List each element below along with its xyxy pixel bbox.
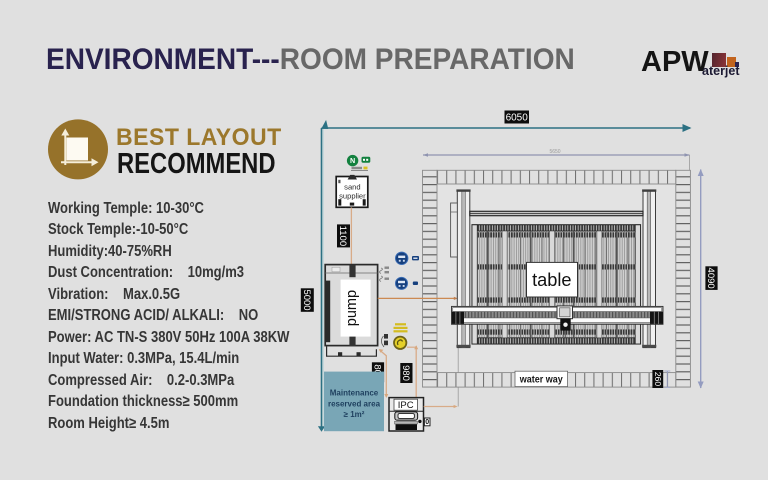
svg-text:260: 260 bbox=[653, 372, 663, 386]
svg-text:≥ 1m²: ≥ 1m² bbox=[344, 410, 365, 419]
svg-text:5000: 5000 bbox=[301, 289, 312, 310]
svg-text:reserved area: reserved area bbox=[328, 399, 381, 408]
svg-text:water way: water way bbox=[519, 374, 563, 386]
svg-text:N: N bbox=[350, 156, 355, 165]
svg-text:5650: 5650 bbox=[549, 149, 560, 155]
svg-text:6050: 6050 bbox=[506, 113, 529, 124]
svg-text:sand: sand bbox=[344, 183, 360, 192]
svg-text:1100: 1100 bbox=[337, 226, 348, 246]
svg-text:0: 0 bbox=[425, 419, 429, 426]
svg-text:IPC: IPC bbox=[398, 400, 414, 411]
svg-text:Maintenance: Maintenance bbox=[330, 389, 379, 398]
svg-text:4090: 4090 bbox=[705, 268, 716, 289]
svg-text:pump: pump bbox=[344, 290, 360, 326]
svg-text:table: table bbox=[532, 270, 571, 290]
svg-text:980: 980 bbox=[400, 365, 411, 381]
svg-text:supplier: supplier bbox=[339, 191, 366, 200]
